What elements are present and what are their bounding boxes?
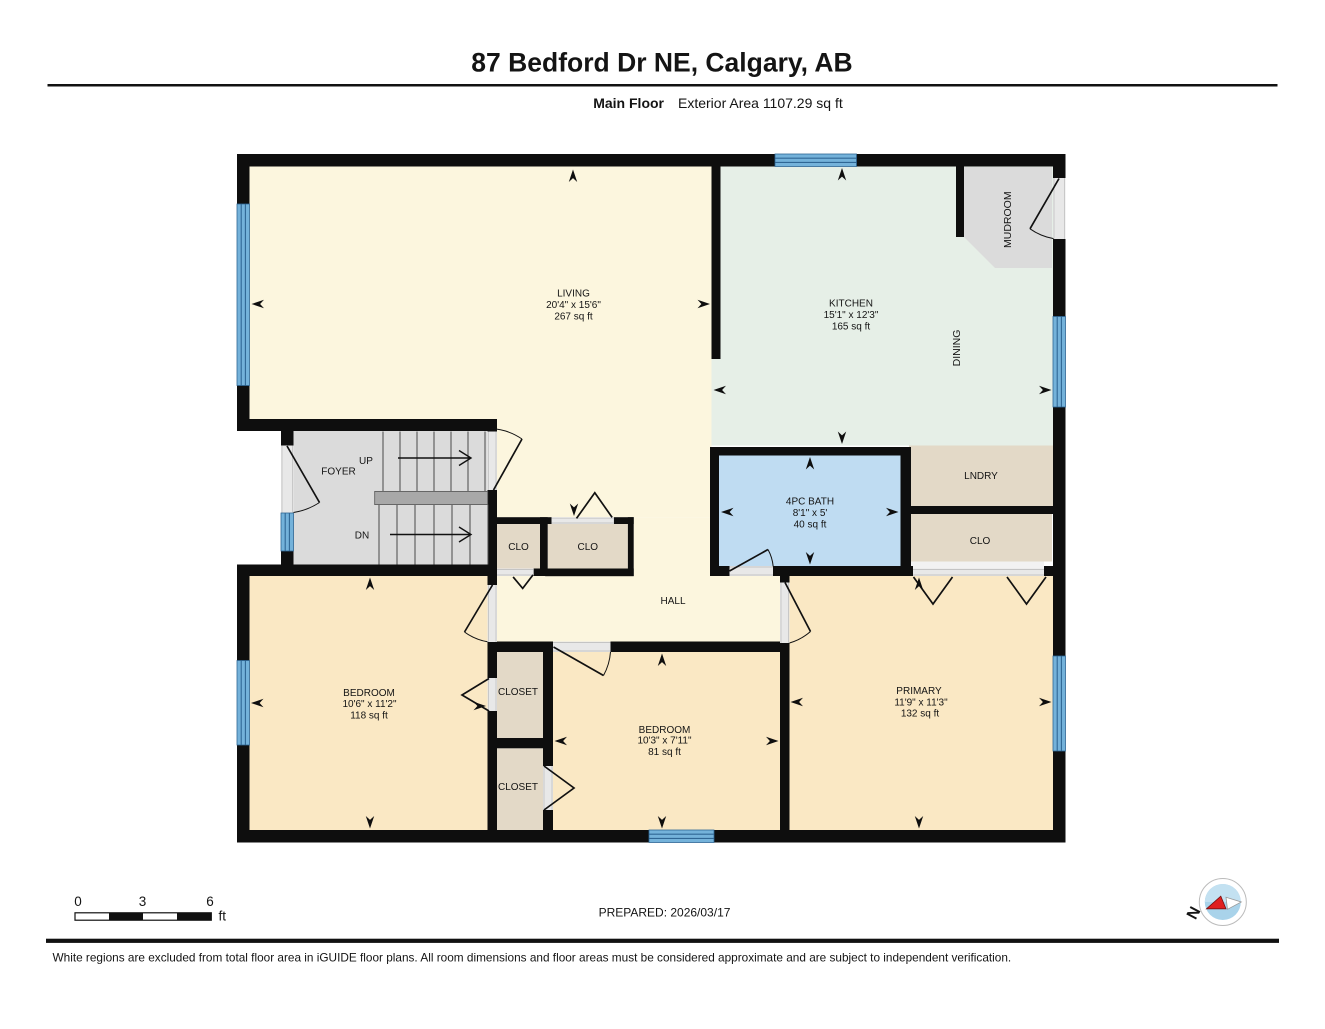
svg-text:Main Floor: Main Floor [593, 95, 664, 111]
svg-text:87 Bedford Dr NE, Calgary, AB: 87 Bedford Dr NE, Calgary, AB [471, 48, 852, 78]
svg-text:PRIMARY: PRIMARY [896, 686, 942, 697]
svg-text:0: 0 [74, 894, 82, 909]
svg-text:White regions are excluded fro: White regions are excluded from total fl… [53, 951, 1012, 965]
svg-text:DN: DN [355, 531, 369, 542]
svg-text:267 sq ft: 267 sq ft [554, 312, 593, 323]
svg-text:165 sq ft: 165 sq ft [832, 322, 871, 333]
svg-text:CLO: CLO [970, 536, 991, 547]
svg-text:20'4" x 15'6": 20'4" x 15'6" [546, 300, 601, 311]
svg-text:40 sq ft: 40 sq ft [794, 520, 827, 531]
svg-text:BEDROOM: BEDROOM [639, 725, 691, 736]
svg-text:6: 6 [206, 894, 214, 909]
svg-text:81 sq ft: 81 sq ft [648, 747, 681, 758]
svg-text:11'9" x 11'3": 11'9" x 11'3" [894, 698, 948, 709]
svg-text:CLO: CLO [578, 542, 599, 553]
svg-text:MUDROOM: MUDROOM [1002, 191, 1014, 248]
svg-text:DINING: DINING [951, 330, 963, 367]
svg-text:PREPARED: 2026/03/17: PREPARED: 2026/03/17 [599, 906, 731, 920]
svg-text:118 sq ft: 118 sq ft [350, 711, 388, 722]
svg-text:CLOSET: CLOSET [498, 687, 538, 698]
svg-text:FOYER: FOYER [321, 467, 355, 478]
svg-text:8'1" x 5': 8'1" x 5' [793, 508, 828, 519]
svg-text:ft: ft [219, 909, 227, 924]
svg-text:3: 3 [139, 894, 147, 909]
svg-text:10'6" x 11'2": 10'6" x 11'2" [342, 699, 397, 710]
svg-text:HALL: HALL [660, 596, 685, 607]
svg-text:4PC BATH: 4PC BATH [786, 497, 834, 508]
svg-text:CLOSET: CLOSET [498, 782, 538, 793]
svg-text:KITCHEN: KITCHEN [829, 299, 873, 310]
svg-text:BEDROOM: BEDROOM [343, 688, 395, 699]
svg-text:CLO: CLO [508, 542, 529, 553]
svg-text:132 sq ft: 132 sq ft [901, 709, 940, 720]
svg-text:15'1" x 12'3": 15'1" x 12'3" [824, 310, 879, 321]
svg-text:LIVING: LIVING [557, 289, 590, 300]
svg-text:10'3" x 7'11": 10'3" x 7'11" [637, 736, 692, 747]
svg-text:UP: UP [359, 456, 373, 467]
svg-text:LNDRY: LNDRY [964, 471, 998, 482]
svg-text:Exterior Area 1107.29 sq ft: Exterior Area 1107.29 sq ft [678, 95, 843, 111]
